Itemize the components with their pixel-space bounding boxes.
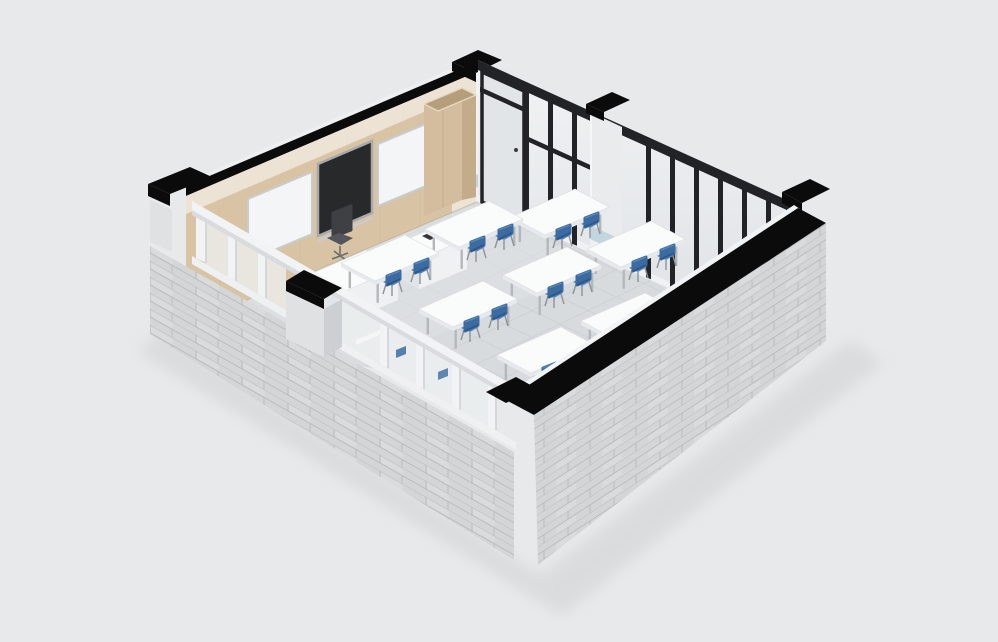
glass-mullion: [670, 156, 675, 290]
classroom-render: [0, 0, 998, 642]
glass-mullion: [524, 90, 529, 224]
door-handle: [514, 148, 518, 152]
isometric-scene: [0, 0, 998, 642]
cabinet: [424, 88, 476, 216]
